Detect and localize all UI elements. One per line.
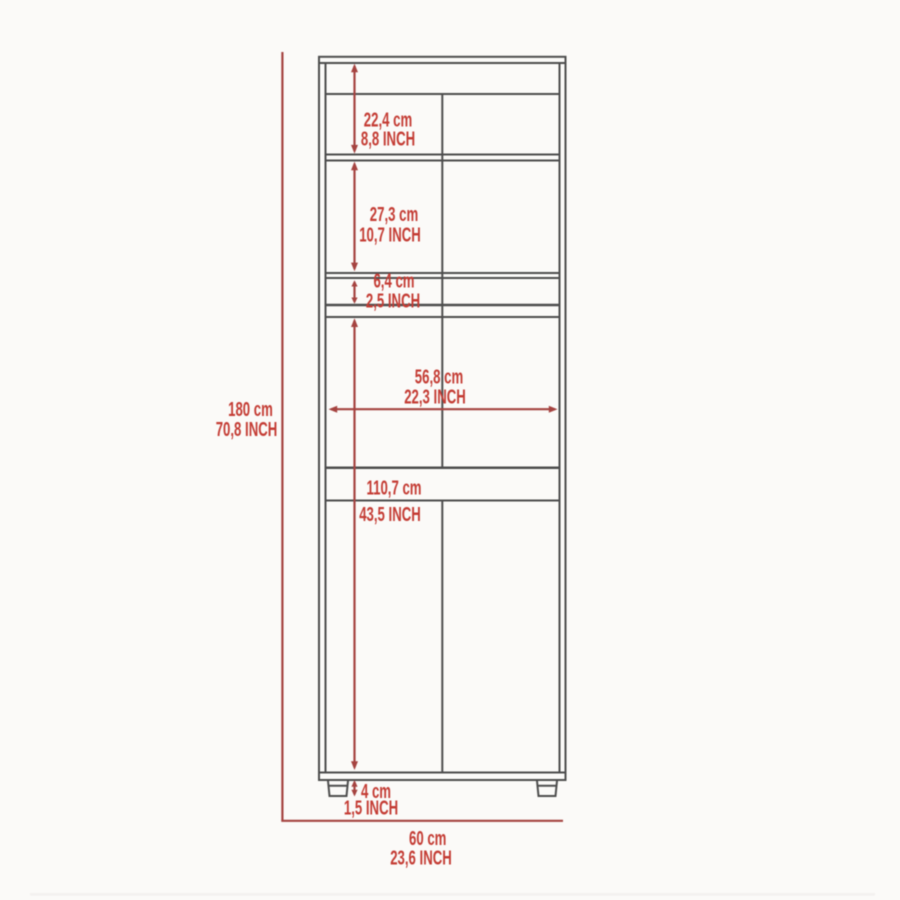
svg-text:27,3 cm: 27,3 cm <box>370 203 418 225</box>
svg-text:23,6 INCH: 23,6 INCH <box>390 847 452 869</box>
svg-text:2,5 INCH: 2,5 INCH <box>366 290 420 312</box>
svg-text:1,5 INCH: 1,5 INCH <box>344 797 398 819</box>
svg-text:110,7 cm: 110,7 cm <box>366 477 421 499</box>
svg-text:8,8 INCH: 8,8 INCH <box>361 128 415 150</box>
svg-text:43,5 INCH: 43,5 INCH <box>359 503 421 525</box>
svg-text:70,8 INCH: 70,8 INCH <box>216 418 278 440</box>
svg-text:10,7 INCH: 10,7 INCH <box>359 224 421 246</box>
svg-text:22,3 INCH: 22,3 INCH <box>404 386 466 408</box>
svg-text:6,4 cm: 6,4 cm <box>373 270 414 292</box>
